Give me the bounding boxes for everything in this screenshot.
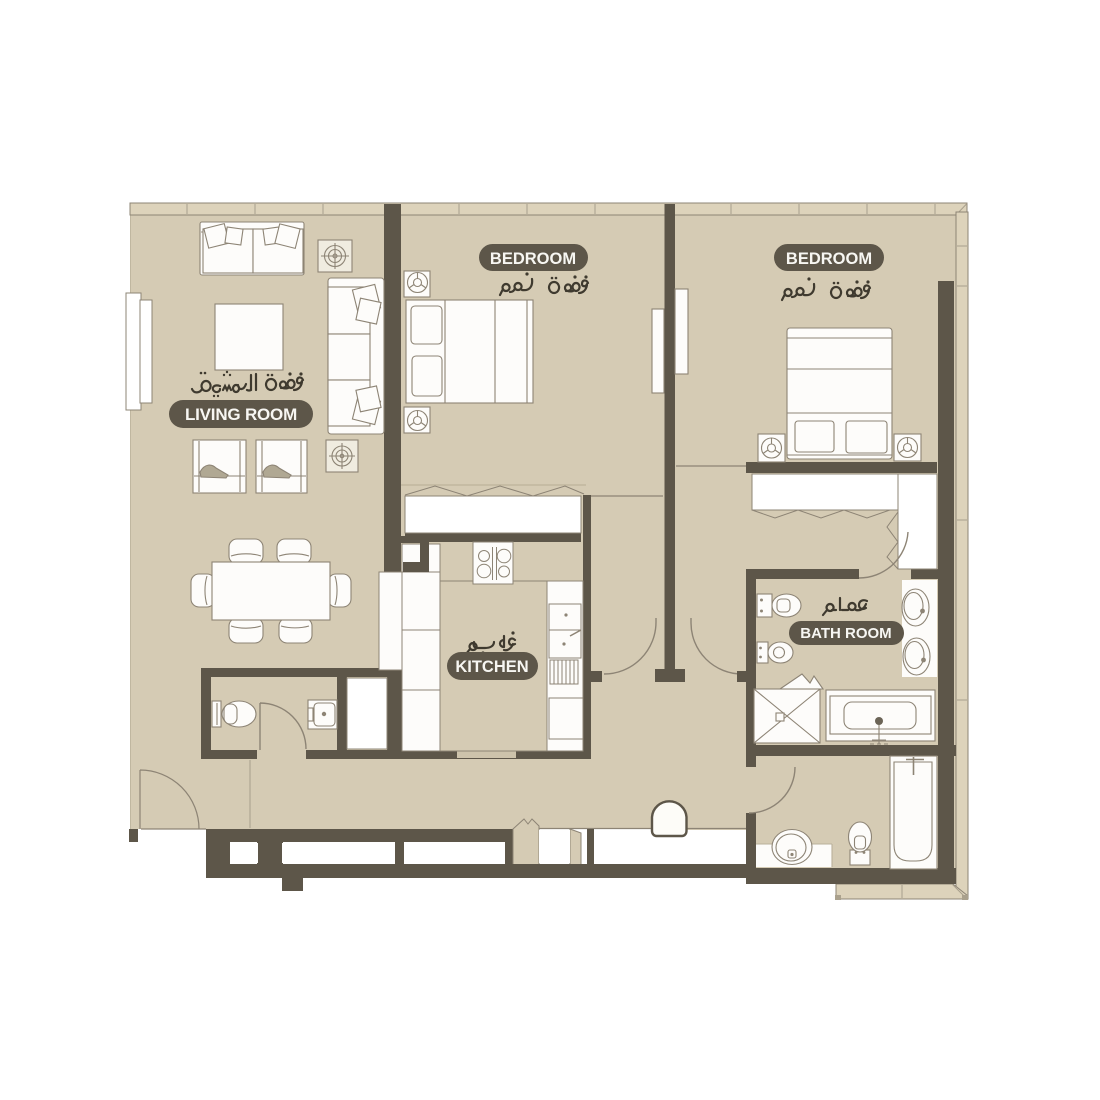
svg-text:BATH ROOM: BATH ROOM bbox=[800, 625, 891, 642]
svg-text:BEDROOM: BEDROOM bbox=[490, 250, 576, 268]
svg-text:KITCHEN: KITCHEN bbox=[455, 658, 528, 676]
svg-text:BEDROOM: BEDROOM bbox=[786, 250, 872, 268]
svg-text:LIVING ROOM: LIVING ROOM bbox=[185, 405, 297, 424]
